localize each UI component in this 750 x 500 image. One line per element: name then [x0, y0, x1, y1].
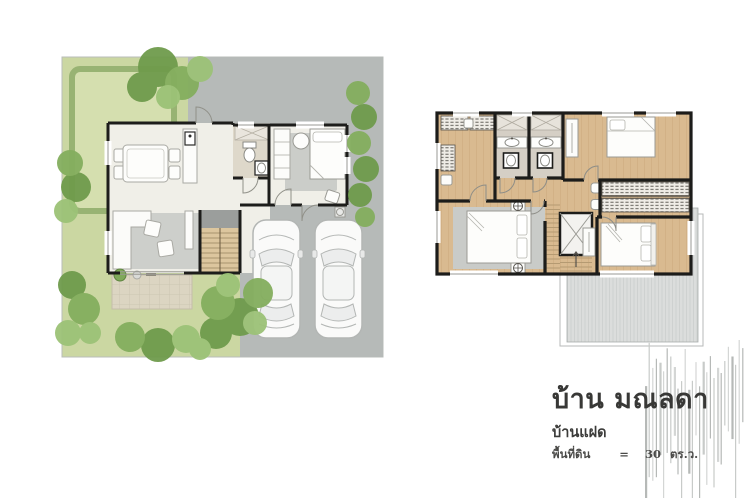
land-area-value: 30 [640, 447, 666, 461]
kitchen-sink-icon [185, 132, 195, 145]
wardrobe [441, 145, 455, 171]
land-area-row: พื้นที่ดิน = 30 ตร.ว. [552, 446, 750, 464]
land-area-label: พื้นที่ดิน [552, 446, 608, 464]
ground-floor-plan [50, 45, 395, 365]
second-floor-plan [420, 95, 720, 360]
bed [607, 117, 655, 157]
master-bedroom [467, 201, 531, 273]
console-cabinet [185, 211, 193, 249]
brochure-floor-plans: บ้าน มณลดา บ้านแฝด พื้นที่ดิน = 30 ตร.ว. [0, 0, 750, 500]
bed [467, 211, 531, 263]
wardrobe [470, 116, 495, 130]
title-block: บ้าน มณลดา บ้านแฝด พื้นที่ดิน = 30 ตร.ว. [552, 386, 750, 464]
land-area-equals: = [612, 447, 636, 461]
car-2 [312, 220, 365, 338]
toilet-icon [243, 142, 256, 162]
ac-unit-icon [335, 207, 345, 217]
sink-icon [255, 161, 268, 175]
staircase [200, 210, 240, 273]
sink-icon [505, 139, 519, 147]
project-subtitle: บ้านแฝด [552, 421, 750, 444]
nightstand [441, 175, 452, 185]
bed [310, 129, 345, 179]
sink-icon [539, 139, 553, 147]
project-title: บ้าน มณลดา [552, 386, 750, 414]
round-side-table [293, 133, 309, 149]
bed [601, 223, 656, 266]
plant-icon [114, 269, 126, 281]
kitchen-counter [183, 129, 197, 183]
wardrobe [274, 129, 290, 179]
land-area-unit: ตร.ว. [670, 447, 698, 461]
